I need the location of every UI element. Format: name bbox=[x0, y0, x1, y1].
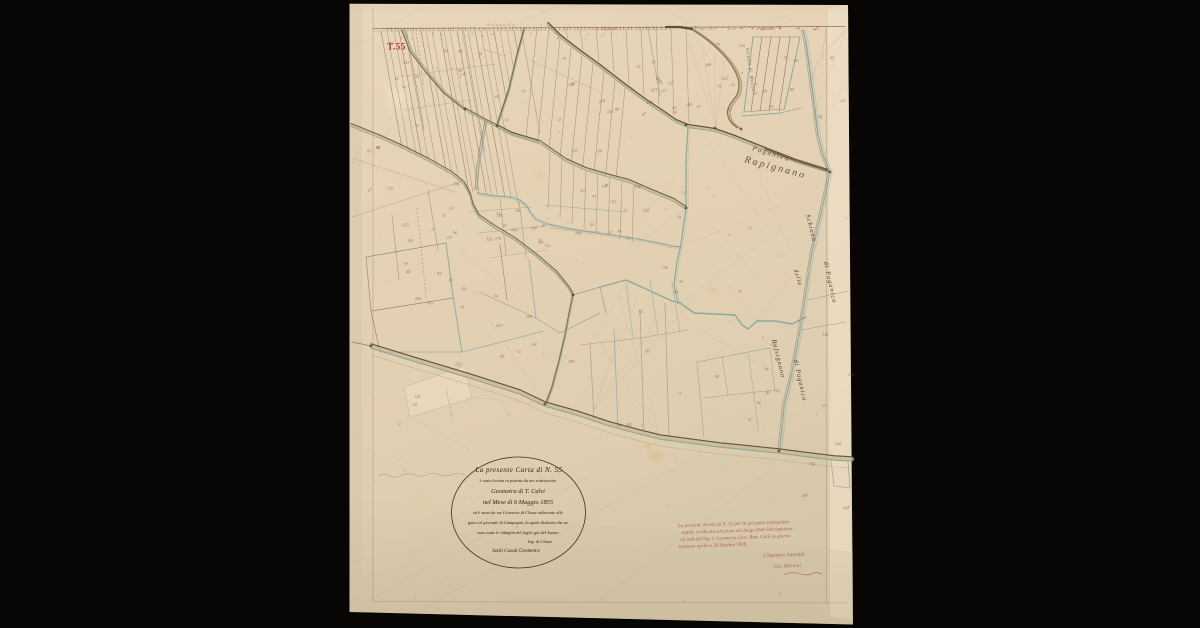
svg-text:255: 255 bbox=[607, 109, 615, 114]
svg-text:80: 80 bbox=[790, 87, 795, 92]
svg-text:129: 129 bbox=[414, 394, 421, 399]
svg-text:94: 94 bbox=[590, 223, 594, 227]
svg-text:117: 117 bbox=[646, 100, 653, 105]
svg-text:181: 181 bbox=[802, 492, 809, 498]
svg-text:138: 138 bbox=[531, 343, 537, 347]
svg-text:58: 58 bbox=[460, 305, 464, 310]
svg-text:82: 82 bbox=[394, 75, 399, 81]
svg-text:94: 94 bbox=[731, 83, 735, 87]
svg-text:209: 209 bbox=[497, 214, 503, 218]
svg-text:221: 221 bbox=[722, 75, 729, 81]
svg-text:216: 216 bbox=[770, 341, 776, 346]
svg-text:233: 233 bbox=[402, 222, 410, 228]
svg-text:98: 98 bbox=[494, 294, 499, 299]
svg-text:215: 215 bbox=[580, 188, 586, 193]
svg-text:96: 96 bbox=[757, 401, 761, 405]
svg-text:62: 62 bbox=[638, 308, 643, 314]
svg-text:207: 207 bbox=[496, 323, 503, 328]
svg-text:74: 74 bbox=[415, 123, 419, 128]
svg-text:156: 156 bbox=[848, 372, 855, 377]
svg-text:è stata levata in parata da me: è stata levata in parata da me sottoscri… bbox=[480, 478, 557, 483]
svg-text:175: 175 bbox=[446, 236, 452, 240]
svg-text:85: 85 bbox=[794, 58, 799, 63]
svg-text:195: 195 bbox=[412, 403, 418, 407]
svg-text:202: 202 bbox=[626, 423, 632, 427]
svg-text:53: 53 bbox=[822, 404, 826, 408]
svg-text:97: 97 bbox=[637, 65, 641, 69]
svg-text:26: 26 bbox=[776, 389, 780, 393]
svg-text:20: 20 bbox=[679, 279, 683, 284]
svg-text:90: 90 bbox=[404, 262, 408, 266]
svg-text:179: 179 bbox=[495, 236, 501, 241]
svg-text:34: 34 bbox=[764, 366, 769, 372]
svg-text:82: 82 bbox=[505, 118, 509, 122]
svg-text:41: 41 bbox=[558, 118, 562, 122]
svg-text:nel Mese di 6 Maggio 1855: nel Mese di 6 Maggio 1855 bbox=[483, 499, 553, 506]
svg-text:Gio. Mariani: Gio. Mariani bbox=[773, 563, 801, 570]
svg-text:Pagnana: Pagnana bbox=[756, 27, 776, 32]
svg-text:230: 230 bbox=[511, 227, 519, 232]
svg-text:T.55: T.55 bbox=[387, 43, 406, 53]
svg-text:ed è stato da me Giometra di C: ed è stato da me Giometra di Classe adia… bbox=[473, 510, 563, 515]
svg-text:103: 103 bbox=[427, 301, 433, 305]
svg-text:55: 55 bbox=[748, 226, 752, 230]
svg-text:47: 47 bbox=[571, 81, 576, 86]
svg-text:79: 79 bbox=[562, 56, 566, 61]
svg-text:236: 236 bbox=[415, 296, 421, 301]
svg-text:29: 29 bbox=[645, 348, 650, 353]
svg-text:72: 72 bbox=[442, 213, 447, 218]
svg-text:delagnola: delagnola bbox=[487, 22, 516, 27]
svg-text:248: 248 bbox=[835, 441, 841, 446]
svg-text:56: 56 bbox=[598, 149, 602, 153]
svg-text:69: 69 bbox=[367, 149, 372, 154]
svg-text:209: 209 bbox=[526, 315, 532, 319]
svg-text:40: 40 bbox=[415, 75, 419, 79]
svg-text:24: 24 bbox=[753, 91, 757, 96]
svg-text:Ing. di Classe: Ing. di Classe bbox=[527, 539, 552, 544]
svg-text:136: 136 bbox=[822, 332, 829, 337]
svg-text:38: 38 bbox=[478, 52, 482, 56]
svg-text:240: 240 bbox=[575, 230, 583, 236]
svg-text:sono state le indagini del fog: sono state le indagini del foglio già de… bbox=[477, 530, 559, 535]
svg-text:Geometra di T. Calvi: Geometra di T. Calvi bbox=[491, 488, 545, 495]
svg-text:180: 180 bbox=[568, 359, 576, 364]
svg-text:194: 194 bbox=[739, 43, 745, 48]
svg-text:64: 64 bbox=[673, 110, 677, 114]
svg-text:Santi Casali Geometra: Santi Casali Geometra bbox=[492, 548, 540, 554]
svg-text:73: 73 bbox=[623, 208, 627, 213]
svg-text:52: 52 bbox=[397, 422, 401, 427]
svg-text:71: 71 bbox=[681, 190, 686, 195]
svg-text:S. lagnola: S. lagnola bbox=[596, 27, 617, 32]
svg-text:50: 50 bbox=[517, 350, 521, 354]
svg-text:35: 35 bbox=[537, 237, 542, 243]
svg-text:143: 143 bbox=[403, 60, 409, 65]
svg-text:107: 107 bbox=[840, 99, 846, 103]
svg-text:La presente Carta di N. 55: La presente Carta di N. 55 bbox=[474, 466, 562, 474]
